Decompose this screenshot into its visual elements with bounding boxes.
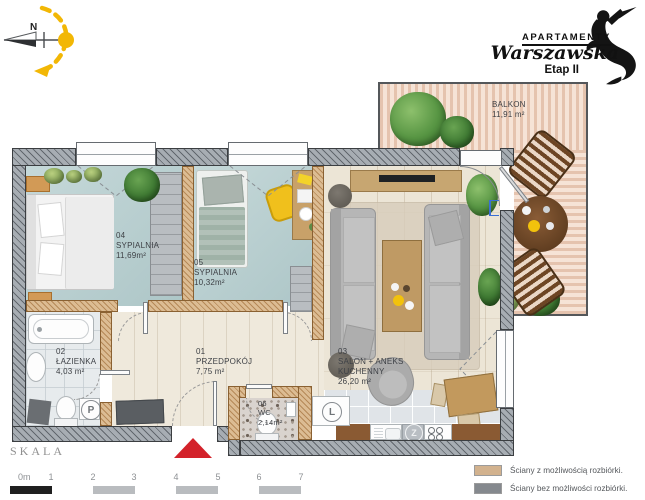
pouf — [328, 184, 352, 208]
kitchen-sink — [370, 424, 402, 440]
walls-legend: Ściany z możliwością rozbiórki. Ściany b… — [474, 463, 645, 499]
window — [76, 142, 156, 166]
coffee-table — [382, 240, 422, 332]
scale-segment — [93, 486, 135, 494]
burner — [436, 427, 443, 434]
scale-tick: 2 — [90, 472, 95, 482]
headboard — [27, 195, 36, 289]
wall — [298, 386, 312, 440]
hallway-label: 01 PRZEDPOKÓJ 7,75 m² — [196, 347, 262, 377]
bedroom-04-label: 04 SYPIALNIA 11,69m² — [116, 231, 186, 261]
toilet — [54, 396, 76, 426]
tv — [379, 175, 435, 182]
legend-swatch-structural — [474, 483, 502, 494]
plant-icon — [66, 170, 82, 183]
plant-icon — [478, 268, 502, 306]
balcony-label: BALKON 11,91 m² — [492, 100, 526, 120]
double-bed — [26, 194, 114, 290]
scale-tick: 3 — [131, 472, 136, 482]
brand-sub-label: Etap II — [544, 64, 579, 76]
wall — [500, 148, 514, 166]
scale-segment — [10, 486, 52, 494]
window — [496, 330, 514, 408]
scale-segment — [259, 486, 301, 494]
plate — [522, 206, 531, 215]
scale-title: SKALA — [10, 444, 65, 459]
tv-sideboard — [350, 170, 462, 192]
plate — [543, 206, 550, 213]
floor-plan-canvas: N APARTAMENTY Warszawska Etap II — [0, 0, 645, 500]
scale-tick: 0m — [18, 472, 31, 482]
faucet — [37, 327, 42, 332]
dining-table — [444, 373, 499, 418]
decor — [405, 301, 414, 310]
door-leaf — [143, 302, 148, 334]
legend-label: Ściany z możliwością rozbiórki. — [510, 466, 623, 475]
decor — [403, 285, 410, 292]
wall — [312, 166, 324, 340]
legend-item: Ściany bez możliwości rozbiórki. — [474, 483, 627, 494]
legend-label: Ściany bez możliwości rozbiórki. — [510, 484, 627, 493]
plant-icon — [44, 168, 64, 184]
wall — [100, 402, 112, 426]
fridge-symbol: L — [322, 402, 342, 422]
scale-segment — [176, 486, 218, 494]
window — [228, 142, 308, 166]
bathtub — [28, 314, 94, 344]
sofa — [330, 208, 376, 360]
sofa-backrest — [331, 209, 341, 359]
balcony-table — [512, 196, 568, 252]
scale-tick: 4 — [173, 472, 178, 482]
entrance-door-leaf — [213, 381, 217, 426]
scale-tick: 7 — [298, 472, 303, 482]
compass-north-label: N — [30, 22, 37, 33]
sofa-cushion — [343, 217, 375, 283]
washing-machine-symbol: P — [81, 400, 101, 420]
wall — [500, 408, 514, 442]
scale-tick: 6 — [256, 472, 261, 482]
scale-bar: SKALA 0m 1 2 3 4 5 6 7 — [10, 444, 310, 500]
brand-logo: APARTAMENTY Warszawska Etap II — [511, 6, 641, 86]
decor — [391, 283, 399, 291]
wardrobe — [290, 266, 312, 312]
salon-label: 03 SALON + ANEKS KUCHENNY 26,20 m² — [338, 347, 426, 387]
tree-icon — [440, 116, 474, 148]
wc-label: 06 WC 2,14m² — [258, 399, 298, 427]
legend-swatch-demolishable — [474, 465, 502, 476]
bathroom-cabinet — [27, 399, 52, 426]
duvet — [65, 197, 114, 289]
scale-tick: 1 — [48, 472, 53, 482]
toilet-bowl — [56, 396, 76, 420]
window-opening-lines — [228, 166, 308, 200]
wall — [12, 148, 76, 166]
wall — [12, 426, 172, 442]
dishwasher: Z — [402, 424, 424, 440]
pillow — [38, 242, 65, 276]
bedroom-05-label: 05 SYPIALNIA 10,32m² — [194, 258, 264, 288]
balcony-door — [460, 150, 502, 166]
fridge: L — [312, 396, 350, 426]
decor — [393, 295, 404, 306]
wall — [156, 148, 228, 166]
burner — [428, 427, 435, 434]
legend-item: Ściany z możliwością rozbiórki. — [474, 465, 623, 476]
door-leaf — [246, 384, 272, 389]
washing-machine: P — [79, 398, 100, 420]
scale-tick: 5 — [215, 472, 220, 482]
plate — [528, 220, 540, 232]
tree-icon — [390, 92, 446, 146]
sink-drainer — [374, 428, 383, 438]
wall — [308, 148, 460, 166]
sun-path-arrowhead-icon — [34, 64, 51, 77]
sink-basin — [385, 428, 401, 440]
compass: N — [2, 2, 82, 82]
bathroom-label: 02 ŁAZIENKA 4,03 m² — [56, 347, 116, 377]
washbasin — [26, 352, 46, 382]
door-leaf — [283, 302, 288, 334]
cooktop — [424, 424, 452, 440]
door-dimension-mark — [489, 200, 499, 216]
wall — [500, 210, 514, 330]
plant-icon — [124, 168, 160, 202]
wall — [12, 148, 26, 442]
desk-item — [299, 207, 313, 221]
wall — [148, 300, 283, 312]
plate — [546, 222, 554, 230]
wall — [26, 300, 118, 312]
sun-icon — [58, 32, 74, 48]
north-arrow-icon — [2, 2, 82, 82]
hallway-cabinet — [116, 399, 165, 425]
brand-main-label: Warszawska — [491, 42, 619, 64]
pillow — [37, 202, 64, 238]
duvet — [199, 207, 245, 265]
plant-icon — [84, 167, 102, 182]
wall — [228, 386, 240, 440]
